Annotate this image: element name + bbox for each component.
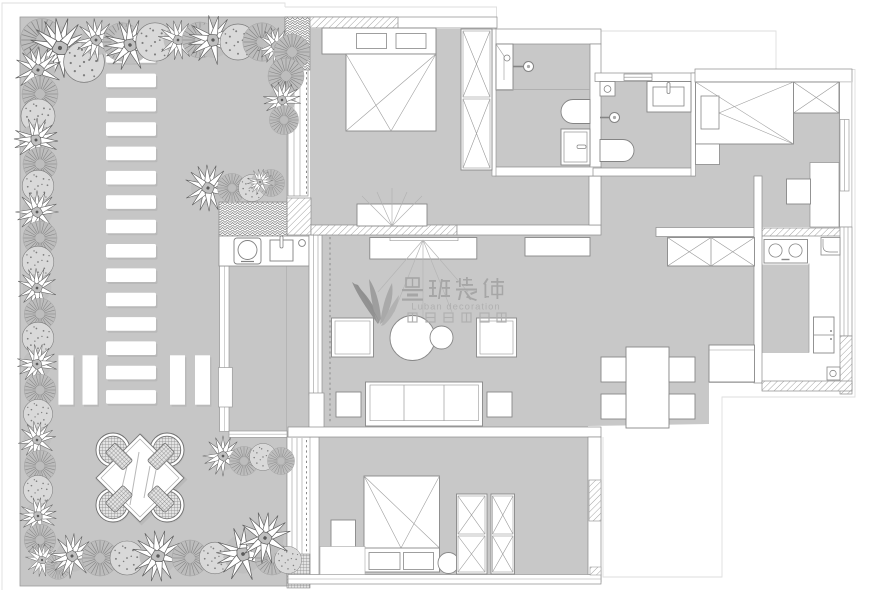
- svg-text:Luban decoration: Luban decoration: [411, 302, 500, 313]
